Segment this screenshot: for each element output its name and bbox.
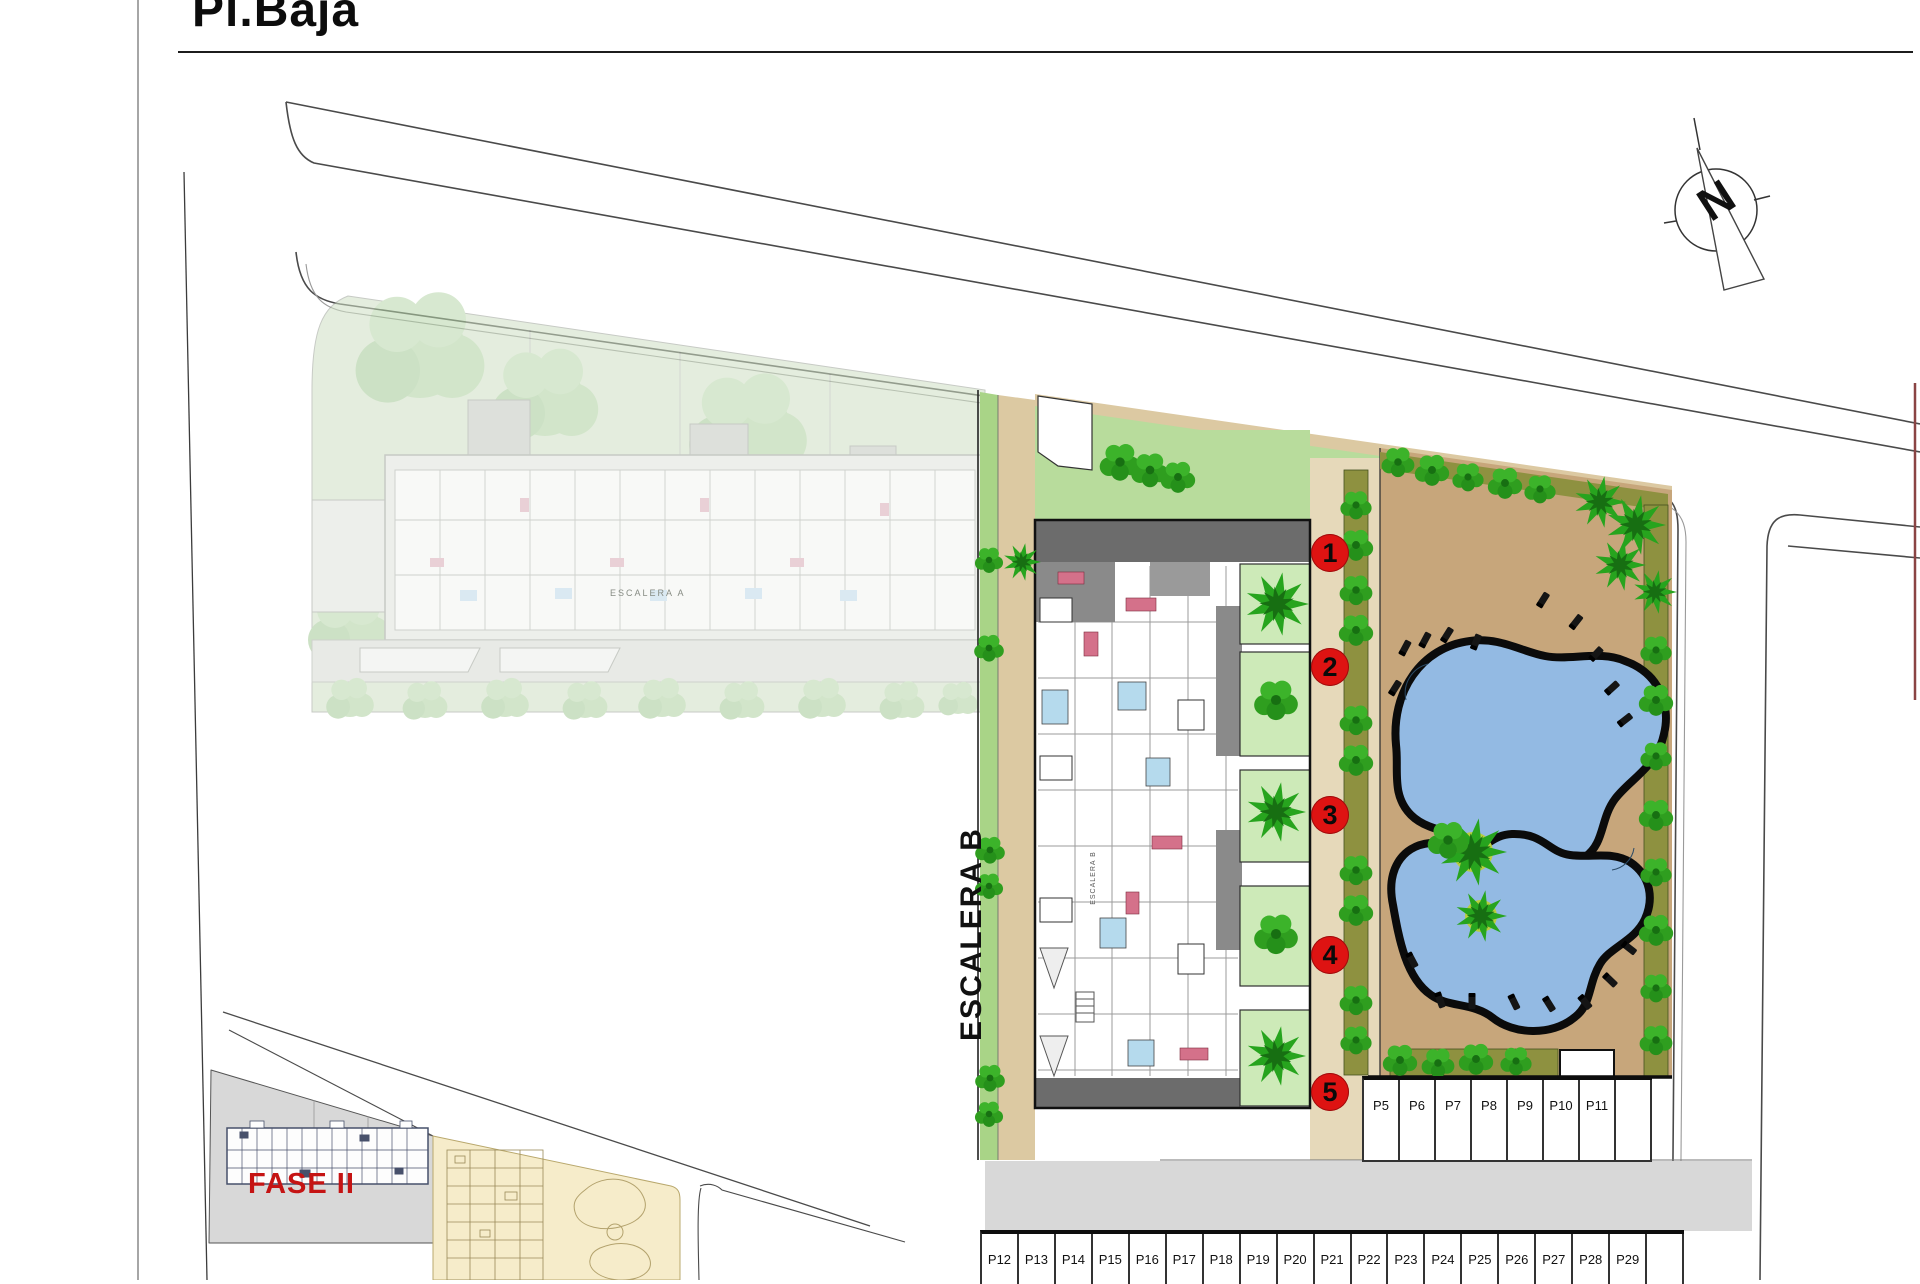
parking-stall-p25: P25 (1462, 1234, 1499, 1284)
parking-stall-p22: P22 (1352, 1234, 1389, 1284)
drive-aisle (985, 1161, 1752, 1231)
parking-stall-p9: P9 (1508, 1080, 1544, 1162)
parking-stall-p11: P11 (1580, 1080, 1616, 1162)
road-left-inner (184, 172, 207, 1280)
parking-stall-p13: P13 (1019, 1234, 1056, 1284)
parking-stall-p28: P28 (1573, 1234, 1610, 1284)
parking-row-right: P5P6P7P8P9P10P11 (1362, 1076, 1652, 1162)
parking-stall-p29: P29 (1610, 1234, 1647, 1284)
parking-stall-p26: P26 (1499, 1234, 1536, 1284)
key-plan (209, 1012, 905, 1280)
parking-stall-p15: P15 (1093, 1234, 1130, 1284)
faded-phase-area (308, 292, 990, 719)
escalera-b-label: ESCALERA B (955, 824, 991, 1044)
left-walkway (998, 395, 1035, 1160)
unit-marker-3: 3 (1311, 796, 1349, 834)
roof-band-top (1035, 520, 1310, 562)
fase-ii-label: FASE II (248, 1168, 355, 1201)
escalera-b-small-label: ESCALERA B (1090, 833, 1100, 923)
roof-band-bottom (1035, 1078, 1240, 1108)
parking-stall-p17: P17 (1167, 1234, 1204, 1284)
parking-stall-p18: P18 (1204, 1234, 1241, 1284)
parking-stall-p16: P16 (1130, 1234, 1167, 1284)
unit-marker-1: 1 (1311, 534, 1349, 572)
unit-marker-4: 4 (1311, 936, 1349, 974)
parking-stall-empty (1616, 1080, 1652, 1162)
parking-stall-p23: P23 (1388, 1234, 1425, 1284)
parking-stall-empty (1647, 1234, 1684, 1284)
unit-marker-2: 2 (1311, 648, 1349, 686)
title-underline (178, 51, 1913, 53)
parking-stall-p5: P5 (1364, 1080, 1400, 1162)
unit-marker-5: 5 (1311, 1073, 1349, 1111)
parking-stall-p20: P20 (1278, 1234, 1315, 1284)
page-title: Pl.Baja (192, 0, 359, 36)
parking-stall-p12: P12 (982, 1234, 1019, 1284)
parking-stall-p14: P14 (1056, 1234, 1093, 1284)
parking-stall-p8: P8 (1472, 1080, 1508, 1162)
left-garden-strip (980, 392, 998, 1160)
right-parcel-edge-2 (1788, 546, 1920, 558)
parking-row-bottom: P12P13P14P15P16P17P18P19P20P21P22P23P24P… (980, 1230, 1684, 1284)
parking-stall-p6: P6 (1400, 1080, 1436, 1162)
right-parcel-edge (1760, 515, 1920, 1280)
parking-stall-p10: P10 (1544, 1080, 1580, 1162)
storage-room (1560, 1050, 1614, 1077)
parking-stall-p21: P21 (1315, 1234, 1352, 1284)
escalera-a-label: ESCALERA A (610, 588, 686, 598)
parking-stall-p19: P19 (1241, 1234, 1278, 1284)
parking-stall-p24: P24 (1425, 1234, 1462, 1284)
parking-stall-p27: P27 (1536, 1234, 1573, 1284)
parking-stall-p7: P7 (1436, 1080, 1472, 1162)
